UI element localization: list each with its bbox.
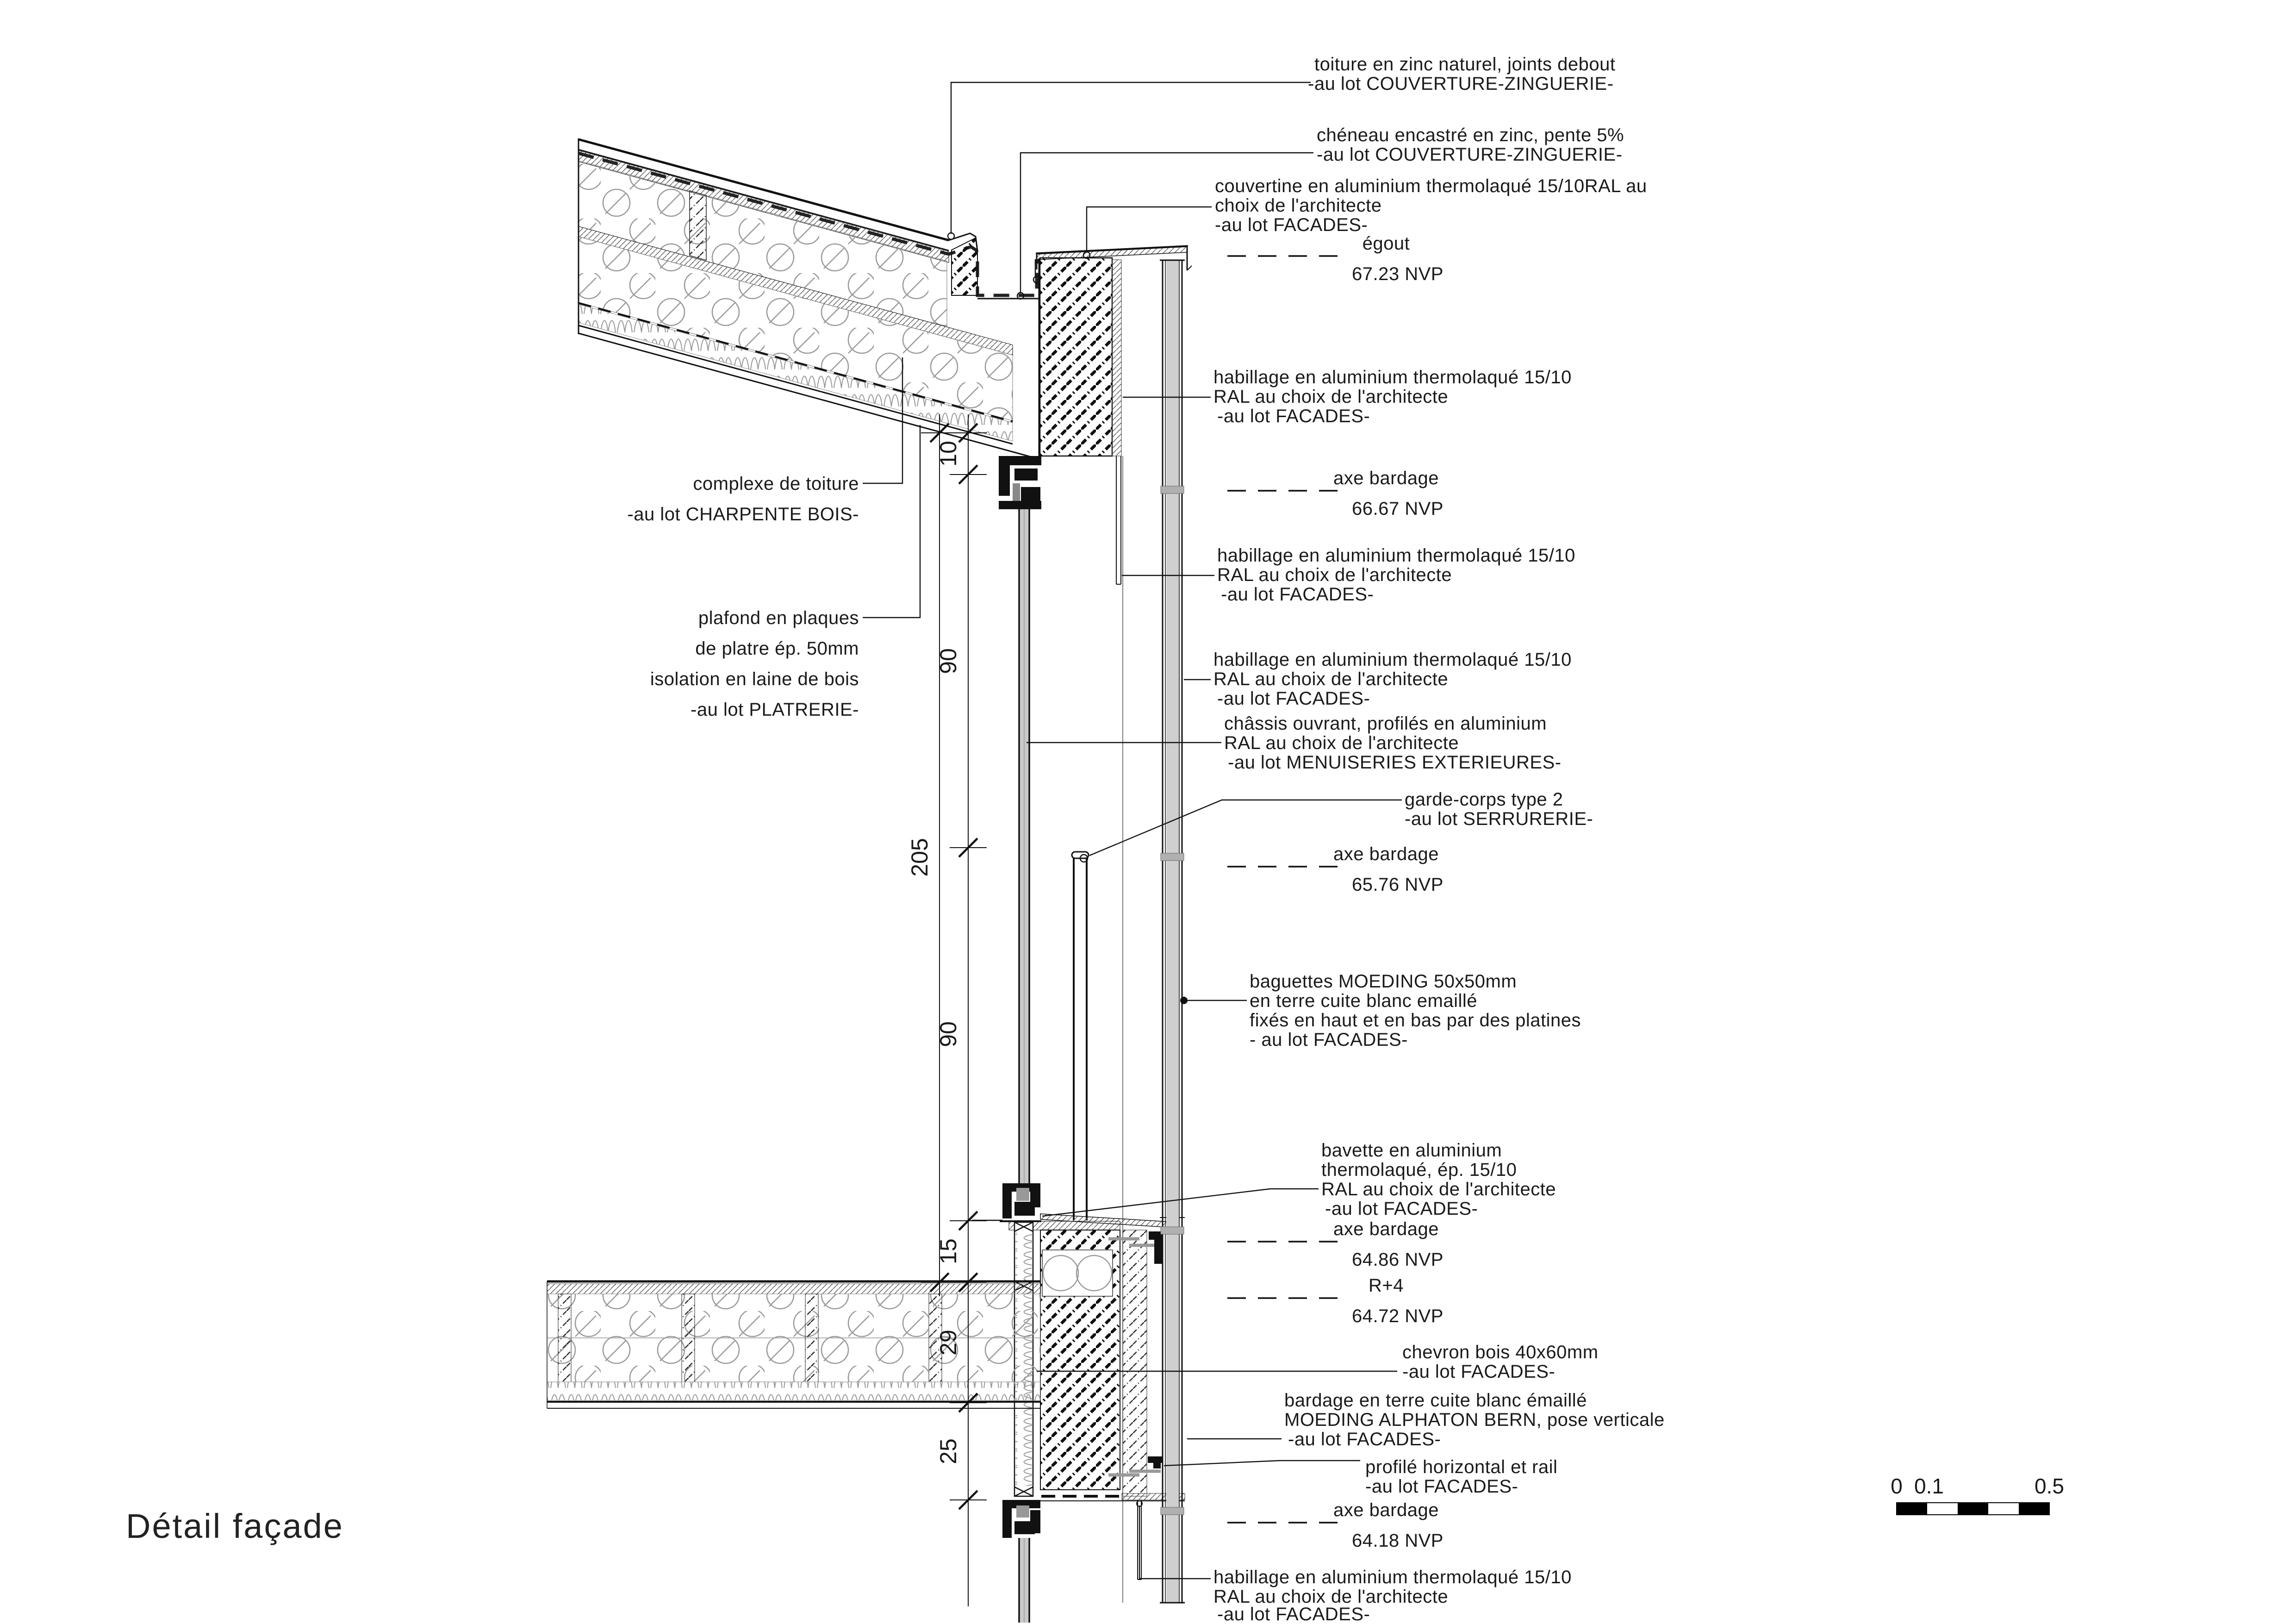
- roof-rafter: [690, 191, 706, 260]
- dim-205: 205: [907, 838, 933, 876]
- label-habillage3-l2: RAL au choix de l'architecte: [1213, 669, 1448, 689]
- annotations-right: toiture en zinc naturel, joints debout -…: [1213, 54, 1665, 1624]
- label-chassis-l2: RAL au choix de l'architecte: [1224, 733, 1459, 753]
- label-chevron-l2: -au lot FACADES-: [1402, 1362, 1555, 1382]
- level-axe1-label: axe bardage: [1333, 468, 1439, 488]
- annotations-left: complexe de toiture -au lot CHARPENTE BO…: [627, 474, 859, 720]
- drawing-title: Détail façade: [126, 1507, 344, 1545]
- level-axe2-label: axe bardage: [1333, 844, 1439, 864]
- label-chassis: châssis ouvrant, profilés en aluminium R…: [1224, 713, 1562, 773]
- label-couvertine-l2: choix de l'architecte: [1215, 195, 1382, 216]
- label-plafond-l3: isolation en laine de bois: [650, 669, 859, 689]
- level-axe4-label: axe bardage: [1333, 1500, 1439, 1520]
- exterior-insulation-column: [1123, 1230, 1147, 1496]
- soffit-lower-window: [1002, 1493, 1185, 1623]
- label-cheneau-l2: -au lot COUVERTURE-ZINGUERIE-: [1317, 144, 1623, 165]
- level-axe3-value: 64.86 NVP: [1352, 1249, 1444, 1270]
- label-complexe: complexe de toiture -au lot CHARPENTE BO…: [627, 474, 859, 525]
- label-bavette-l4: -au lot FACADES-: [1325, 1199, 1478, 1219]
- label-toiture-l1: toiture en zinc naturel, joints debout: [1314, 54, 1616, 75]
- label-bavette-l2: thermolaqué, ép. 15/10: [1321, 1160, 1517, 1180]
- dimension-chains: 10 90 205 90 15 29 25: [907, 414, 987, 1606]
- level-axe4-value: 64.18 NVP: [1352, 1530, 1444, 1551]
- label-habillage2-l1: habillage en aluminium thermolaqué 15/10: [1217, 545, 1575, 566]
- label-habillage1-l1: habillage en aluminium thermolaqué 15/10: [1213, 367, 1572, 387]
- upper-window: [972, 456, 1041, 1221]
- eave-upstand-wedge: [952, 238, 977, 295]
- label-plafond-l1: plafond en plaques: [698, 608, 859, 628]
- level-r4-label: R+4: [1369, 1275, 1404, 1296]
- label-cheneau-l1: chéneau encastré en zinc, pente 5%: [1317, 125, 1624, 145]
- label-bardage-l1: bardage en terre cuite blanc émaillé: [1284, 1390, 1587, 1411]
- roof-assembly: [579, 138, 1037, 457]
- scale-tick-0: 0: [1891, 1474, 1903, 1498]
- level-r4-value: 64.72 NVP: [1352, 1306, 1444, 1326]
- label-habillage-3: habillage en aluminium thermolaqué 15/10…: [1213, 650, 1572, 709]
- label-complexe-l1: complexe de toiture: [693, 474, 859, 494]
- cladding-segments: [1163, 260, 1182, 1603]
- label-bardage-l3: -au lot FACADES-: [1288, 1429, 1441, 1449]
- parapet-habillage-strip: [1112, 260, 1121, 456]
- dim-25: 25: [935, 1438, 961, 1464]
- label-habillage2-l2: RAL au choix de l'architecte: [1217, 565, 1452, 585]
- label-habillage3-l3: -au lot FACADES-: [1217, 688, 1370, 709]
- label-habillage4-l1: habillage en aluminium thermolaqué 15/10: [1213, 1567, 1572, 1587]
- label-garde-corps-l2: -au lot SERRURERIE-: [1405, 809, 1593, 829]
- window-sill-frame: [1002, 1183, 1040, 1218]
- label-toiture-l2: -au lot COUVERTURE-ZINGUERIE-: [1308, 74, 1614, 94]
- level-axe1-value: 66.67 NVP: [1352, 499, 1444, 519]
- scale-bar-seg1: [1897, 1503, 1927, 1515]
- label-habillage3-l1: habillage en aluminium thermolaqué 15/10: [1213, 650, 1572, 670]
- dim-90b: 90: [935, 1021, 961, 1047]
- level-egout-label: égout: [1363, 233, 1410, 254]
- label-chassis-l3: -au lot MENUISERIES EXTERIEURES-: [1228, 752, 1562, 773]
- label-couvertine: couvertine en aluminium thermolaqué 15/1…: [1215, 176, 1647, 235]
- garde-corps: [1072, 852, 1089, 1220]
- parapet-block: [1040, 258, 1112, 456]
- window-head-frame: [999, 456, 1041, 509]
- label-baguettes-l2: en terre cuite blanc emaillé: [1250, 991, 1477, 1011]
- label-chevron: chevron bois 40x60mm -au lot FACADES-: [1402, 1342, 1599, 1382]
- facade-detail-sheet: 10 90 205 90 15 29 25: [0, 0, 2296, 1624]
- label-toiture: toiture en zinc naturel, joints debout -…: [1308, 54, 1616, 94]
- label-habillage4-l3: -au lot FACADES-: [1217, 1604, 1370, 1624]
- label-bavette-l1: bavette en aluminium: [1321, 1140, 1502, 1161]
- level-axe3-label: axe bardage: [1333, 1219, 1439, 1239]
- label-habillage-2: habillage en aluminium thermolaqué 15/10…: [1217, 545, 1575, 605]
- dim-10: 10: [935, 441, 961, 467]
- label-profile-l2: -au lot FACADES-: [1365, 1476, 1518, 1497]
- label-garde-corps: garde-corps type 2 -au lot SERRURERIE-: [1405, 789, 1593, 829]
- label-bavette: bavette en aluminium thermolaqué, ép. 15…: [1321, 1140, 1556, 1219]
- label-chassis-l1: châssis ouvrant, profilés en aluminium: [1224, 713, 1547, 734]
- label-plafond-l2: de platre ép. 50mm: [695, 638, 859, 659]
- lower-window-head-frame: [1002, 1500, 1040, 1538]
- label-garde-corps-l1: garde-corps type 2: [1405, 789, 1563, 810]
- label-habillage-1: habillage en aluminium thermolaqué 15/10…: [1213, 367, 1572, 426]
- label-chevron-l1: chevron bois 40x60mm: [1402, 1342, 1599, 1362]
- label-habillage1-l3: -au lot FACADES-: [1217, 406, 1370, 426]
- dim-29: 29: [935, 1330, 961, 1355]
- rail-brackets: [1148, 1231, 1163, 1468]
- slab-woodwool: [547, 1382, 1040, 1400]
- label-bardage-l2: MOEDING ALPHATON BERN, pose verticale: [1284, 1410, 1665, 1430]
- label-baguettes-l4: - au lot FACADES-: [1250, 1030, 1408, 1050]
- label-plafond-l4: -au lot PLATRERIE-: [691, 700, 859, 720]
- floor-slab: [547, 1281, 1040, 1408]
- scale-tick-01: 0.1: [1914, 1474, 1944, 1498]
- label-cheneau: chéneau encastré en zinc, pente 5% -au l…: [1317, 125, 1624, 165]
- scale-tick-05: 0.5: [2035, 1474, 2064, 1498]
- scale-bar-seg5: [2019, 1503, 2049, 1515]
- cladding-baguettes: [1160, 260, 1185, 1603]
- label-habillage-4: habillage en aluminium thermolaqué 15/10…: [1213, 1567, 1572, 1624]
- dim-90a: 90: [935, 648, 961, 674]
- label-profile: profilé horizontal et rail -au lot FACAD…: [1365, 1457, 1557, 1497]
- label-bavette-l3: RAL au choix de l'architecte: [1321, 1179, 1556, 1199]
- label-plafond: plafond en plaques de platre ép. 50mm is…: [650, 608, 859, 720]
- scale-bar: 0 0.1 0.5: [1891, 1474, 2064, 1515]
- label-bardage: bardage en terre cuite blanc émaillé MOE…: [1284, 1390, 1665, 1449]
- label-baguettes: baguettes MOEDING 50x50mm en terre cuite…: [1250, 971, 1581, 1050]
- level-axe2-value: 65.76 NVP: [1352, 874, 1444, 895]
- label-habillage1-l2: RAL au choix de l'architecte: [1213, 387, 1448, 407]
- scale-bar-seg3: [1958, 1503, 1988, 1515]
- label-baguettes-l3: fixés en haut et en bas par des platines: [1250, 1010, 1581, 1031]
- label-profile-l1: profilé horizontal et rail: [1365, 1457, 1557, 1477]
- label-couvertine-l3: -au lot FACADES-: [1215, 215, 1368, 235]
- label-couvertine-l1: couvertine en aluminium thermolaqué 15/1…: [1215, 176, 1647, 196]
- label-baguettes-l1: baguettes MOEDING 50x50mm: [1250, 971, 1517, 992]
- dim-15: 15: [935, 1238, 961, 1264]
- level-lines: [1227, 256, 1341, 1523]
- level-egout-value: 67.23 NVP: [1352, 264, 1444, 284]
- label-habillage2-l3: -au lot FACADES-: [1221, 584, 1374, 605]
- label-complexe-l2: -au lot CHARPENTE BOIS-: [627, 504, 859, 525]
